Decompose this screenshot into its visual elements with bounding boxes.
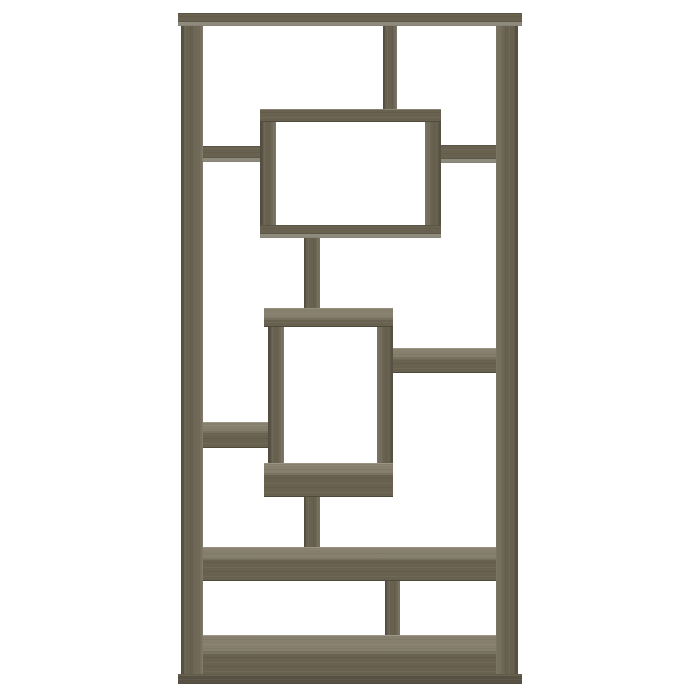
base-strip	[178, 674, 522, 684]
product-photo-canvas	[0, 0, 700, 700]
upper-box-left-side	[260, 122, 276, 226]
upper-left-shelf	[203, 146, 260, 162]
left-side-panel	[181, 26, 203, 675]
right-mid-shelf	[393, 348, 496, 373]
top-divider-post	[383, 26, 397, 110]
upper-box-bottom-shelf	[260, 225, 441, 238]
upper-box-right-side	[425, 122, 441, 226]
lower-box-right-side	[377, 327, 393, 464]
center-post-lower	[304, 497, 320, 548]
top-board	[178, 13, 522, 26]
lower-box-bottom-shelf	[264, 463, 393, 497]
upper-box-top-shelf	[260, 109, 441, 122]
bottom-shelf	[203, 635, 496, 676]
center-post-upper	[304, 238, 320, 309]
upper-right-shelf	[441, 145, 496, 163]
left-mid-shelf	[203, 422, 268, 448]
lower-box-left-side	[268, 327, 284, 464]
long-shelf	[203, 547, 496, 581]
lower-box-top-shelf	[264, 308, 393, 327]
lower-divider-post	[385, 581, 400, 636]
right-side-panel	[496, 26, 518, 675]
geometric-bookcase	[0, 0, 700, 700]
